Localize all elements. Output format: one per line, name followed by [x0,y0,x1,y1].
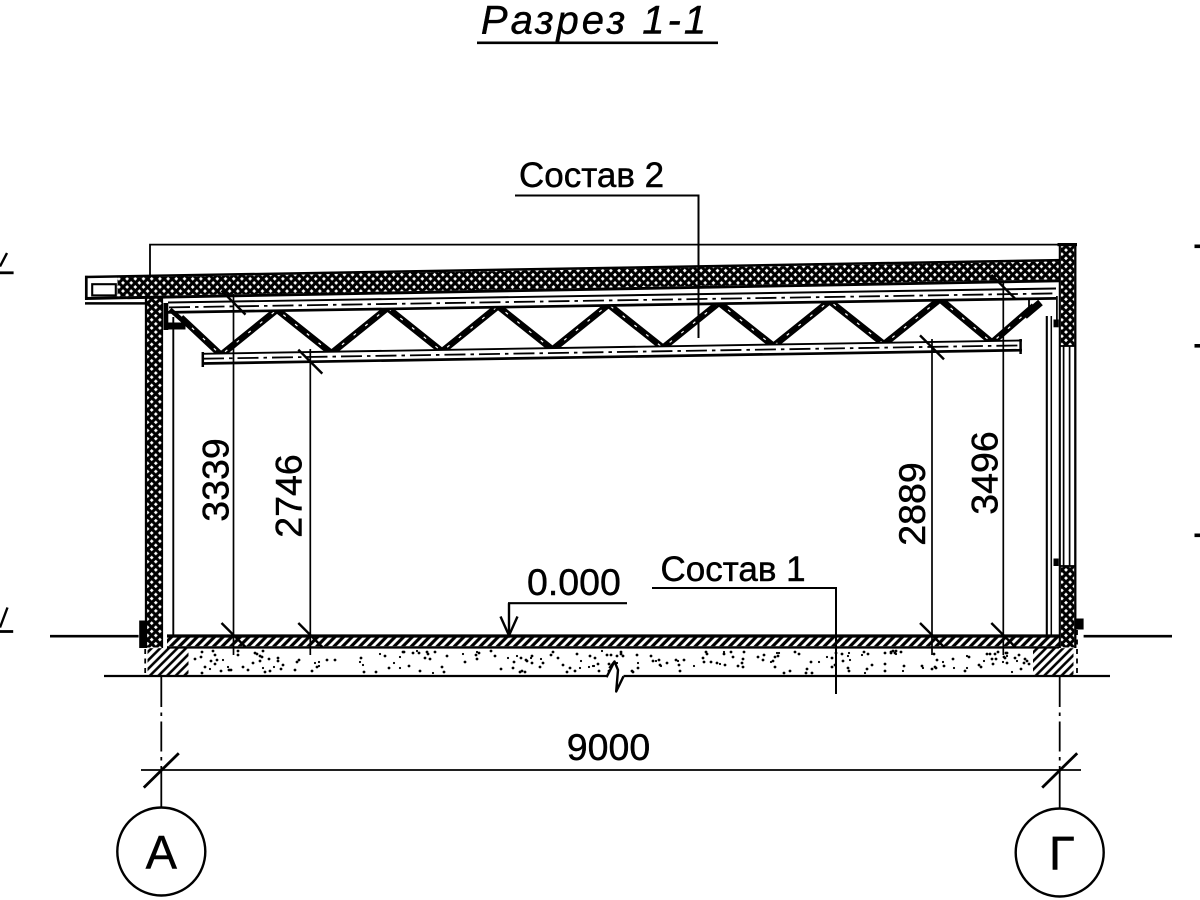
svg-text:3339: 3339 [195,438,237,521]
svg-text:Г: Г [1049,827,1074,880]
svg-text:2889: 2889 [891,462,933,545]
svg-text:Разрез 1-1: Разрез 1-1 [481,0,709,43]
svg-text:3496: 3496 [964,431,1006,514]
svg-text:2746: 2746 [268,454,310,537]
svg-text:Состав 1: Состав 1 [661,550,806,589]
svg-text:А: А [146,826,178,879]
svg-text:Состав 2: Состав 2 [519,156,664,195]
svg-text:9000: 9000 [567,726,650,768]
svg-text:0.000: 0.000 [527,561,621,603]
